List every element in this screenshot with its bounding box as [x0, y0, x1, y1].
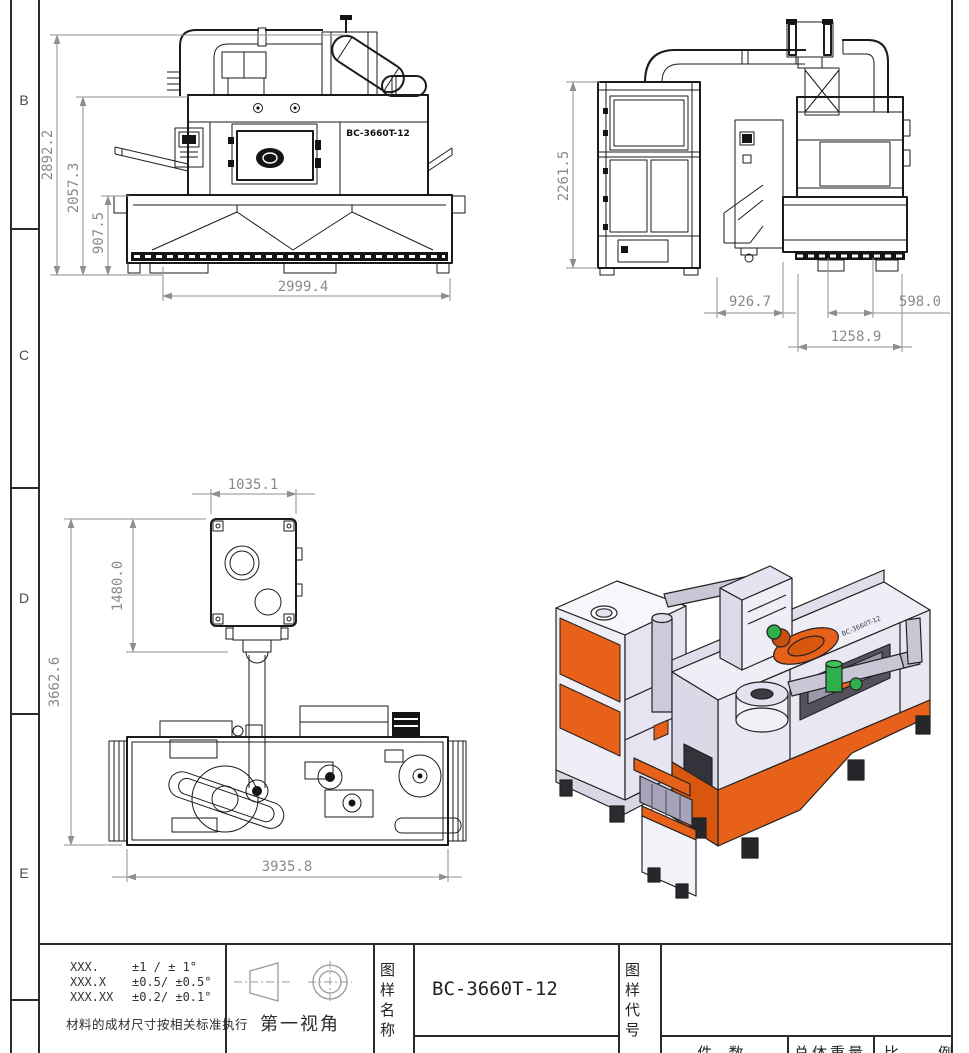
dim-front-total-height: 2892.2	[40, 130, 56, 181]
zone-tick-4	[10, 999, 38, 1001]
plan-view: 1035.1 1480.0 3662.6 3935.8	[47, 477, 466, 882]
drawing-code-label: 图样代号	[621, 952, 642, 1052]
tol-value-2: ±0.5/ ±0.5°	[132, 975, 211, 989]
drawing-canvas: BC-3660T-12	[0, 0, 969, 941]
dim-plan-collector-width: 1035.1	[228, 477, 279, 493]
dim-plan-collector-depth: 1480.0	[110, 561, 126, 612]
drawing-sheet: B C D E	[0, 0, 969, 1053]
dim-side-outlet-width: 598.0	[899, 294, 941, 310]
scale-label-b: 例	[938, 1042, 953, 1053]
weight-label: 总体重量	[787, 1042, 873, 1053]
dim-front-base-width: 2999.4	[278, 279, 329, 295]
first-angle-projection-icon	[232, 957, 372, 1007]
iso-machine	[672, 570, 930, 858]
drawing-name-value: BC-3660T-12	[432, 978, 558, 1000]
front-nameplate: BC-3660T-12	[346, 129, 410, 139]
dim-plan-total-depth: 3662.6	[47, 657, 63, 708]
tol-value-1: ±1 / ± 1°	[132, 960, 197, 974]
scale-label-a: 比	[884, 1042, 899, 1053]
dim-front-body-height: 2057.3	[66, 163, 82, 214]
drawing-name-label: 图样名称	[376, 952, 397, 1052]
side-dimensions: 2261.5 926.7 598.0 1258.9	[556, 82, 950, 352]
isometric-view: BC-3660T-12	[556, 566, 930, 898]
side-view: 2261.5 926.7 598.0 1258.9	[556, 19, 950, 352]
dim-side-gap-width: 926.7	[729, 294, 771, 310]
hopper-funnels	[152, 205, 433, 250]
front-dimensions: 2892.2 2057.3 907.5 2999.4	[40, 35, 450, 301]
front-door	[228, 124, 321, 184]
side-dust-collector	[598, 82, 700, 275]
iso-dust-collector	[556, 581, 686, 822]
qty-label: 件 数	[660, 1042, 787, 1053]
tol-digits-3: XXX.XX	[70, 990, 140, 1004]
side-chute	[724, 185, 763, 243]
dim-plan-total-width: 3935.8	[262, 859, 313, 875]
projection-label: 第一视角	[240, 1010, 360, 1036]
side-elevator-column	[735, 120, 783, 262]
dim-front-hopper-height: 907.5	[91, 212, 107, 254]
front-grill	[167, 72, 179, 90]
tol-digits-1: XXX.	[70, 960, 140, 974]
side-top-frame	[786, 19, 833, 68]
plan-corner-pads	[213, 521, 294, 624]
plan-interior	[165, 740, 461, 833]
dim-side-collector-height: 2261.5	[556, 151, 572, 202]
material-note: 材料的成材尺寸按相关标准执行	[66, 1014, 248, 1033]
tol-value-3: ±0.2/ ±0.1°	[132, 990, 211, 1004]
dim-side-machine-width: 1258.9	[831, 329, 882, 345]
tol-digits-2: XXX.X	[70, 975, 140, 989]
front-feet	[128, 263, 449, 273]
front-view: BC-3660T-12	[40, 15, 465, 301]
